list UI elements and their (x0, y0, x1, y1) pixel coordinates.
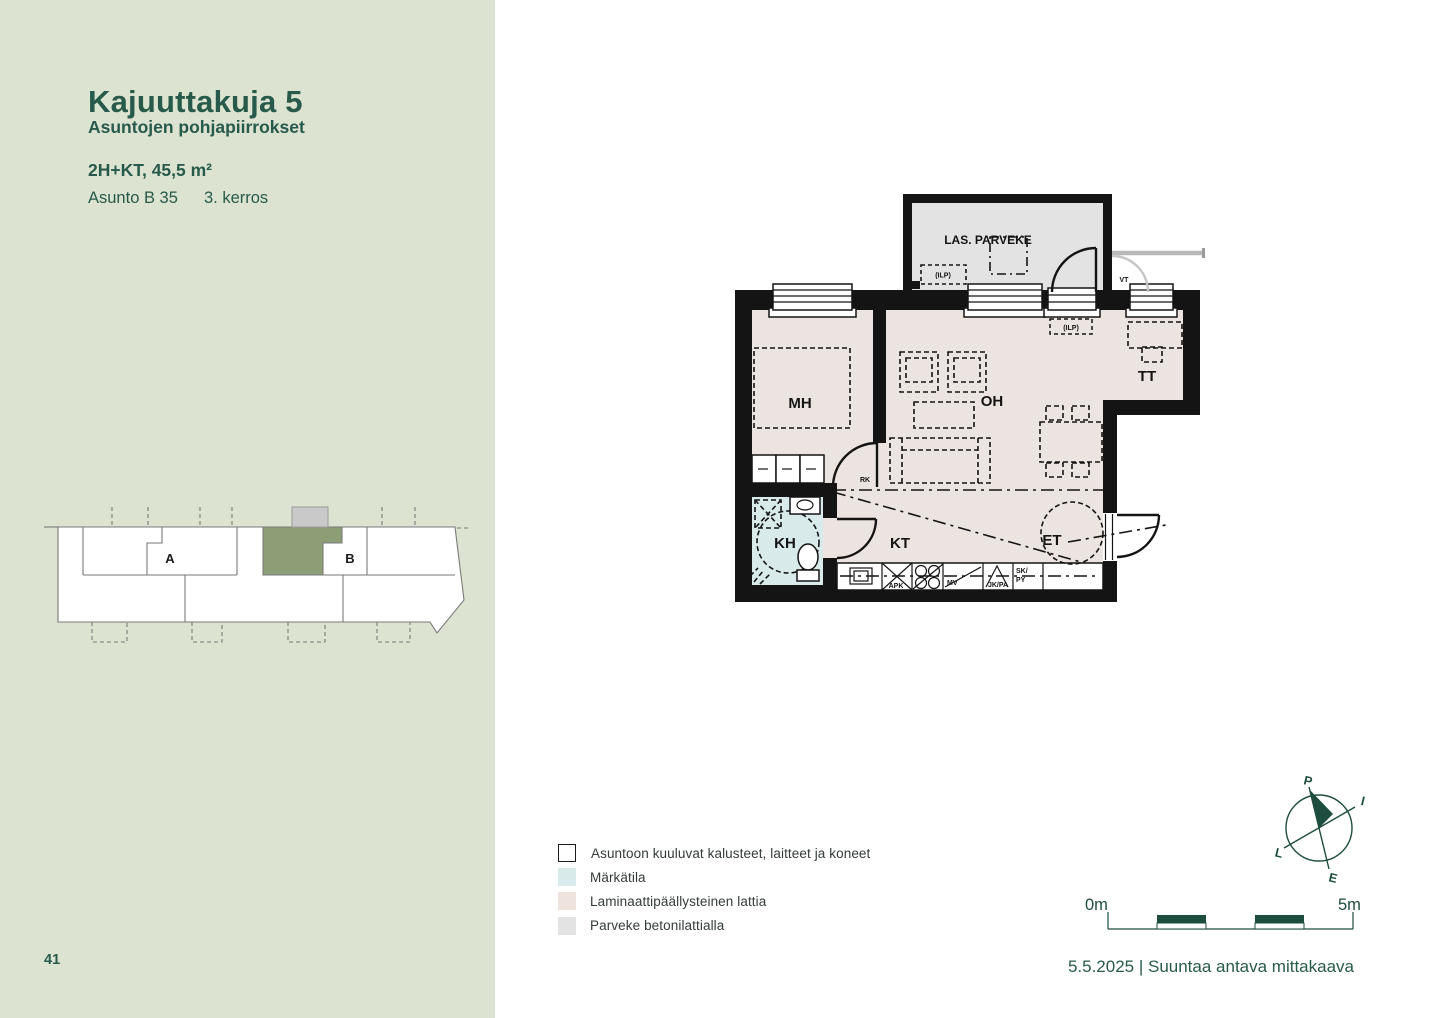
floor-plan: VT (ILP) LAS. PARVEKE (700, 180, 1250, 640)
locator-section-a-label: A (165, 551, 175, 566)
legend-item: Laminaattipäällysteinen lattia (558, 889, 870, 913)
bedroom-window (769, 284, 856, 317)
apartment-floor: 3. kerros (204, 189, 268, 208)
locator-balcony (292, 507, 328, 527)
scale-end-label: 5m (1338, 896, 1361, 914)
bedroom-label: MH (788, 395, 811, 412)
legend-swatch-balcony (558, 917, 576, 935)
page-number: 41 (44, 952, 60, 968)
svg-text:APK: APK (889, 583, 904, 590)
compass-south-label: E (1327, 870, 1338, 886)
locator-section-b-label: B (345, 551, 354, 566)
legend-swatch-laminate (558, 892, 576, 910)
ilp-balcony-label: (ILP) (935, 273, 951, 280)
living-room-label: OH (981, 393, 1004, 410)
entrance-label: ET (1042, 532, 1061, 549)
svg-text:PY: PY (1016, 577, 1026, 584)
wardrobes (752, 455, 824, 483)
bathroom-sink (790, 497, 820, 514)
legend: Asuntoon kuuluvat kalusteet, laitteet ja… (558, 841, 870, 938)
compass-north-label: P (1302, 776, 1313, 789)
apartment-id: Asunto B 35 (88, 189, 178, 207)
balcony-door-opening (1044, 288, 1100, 317)
ilp-living-label: (ILP) (1063, 325, 1079, 332)
apartment-type: 2H+KT, 45,5 m² (88, 160, 212, 181)
footer-date-line: 5.5.2025 | Suuntaa antava mittakaava (1068, 957, 1354, 977)
workspace-window (1126, 284, 1177, 317)
compass-west-label: L (1274, 845, 1285, 861)
living-room-window (964, 284, 1046, 317)
brochure-page: Kajuuttakuja 5 Asuntojen pohjapiirrokset… (0, 0, 1440, 1018)
legend-item: Märkätila (558, 865, 870, 889)
svg-text:SK/: SK/ (1016, 568, 1028, 575)
kitchen-label: KT (890, 535, 910, 552)
scale-bar: 0m 5m (1078, 886, 1378, 941)
sidebar: Kajuuttakuja 5 Asuntojen pohjapiirrokset… (0, 0, 495, 1018)
compass-rose: P I E L (1270, 776, 1375, 886)
page-title: Kajuuttakuja 5 (88, 84, 303, 120)
balcony-label: LAS. PARVEKE (944, 233, 1032, 247)
entrance-door (1103, 514, 1159, 560)
apartment-info-row: Asunto B 35 3. kerros (88, 189, 178, 208)
compass-east-label: I (1360, 794, 1367, 808)
legend-item: Parveke betonilattialla (558, 914, 870, 938)
building-locator-diagram: A B (40, 493, 495, 658)
locator-outline (44, 527, 470, 633)
page-subtitle: Asuntojen pohjapiirrokset (88, 117, 305, 138)
bathroom-label: KH (774, 535, 796, 552)
vt-label: VT (1120, 277, 1130, 284)
legend-item: Asuntoon kuuluvat kalusteet, laitteet ja… (558, 841, 870, 865)
legend-swatch-wetroom (558, 868, 576, 886)
floor-fills (752, 203, 1183, 585)
svg-text:MV: MV (947, 580, 958, 587)
workspace-label: TT (1138, 368, 1156, 385)
legend-swatch-furniture (558, 844, 576, 862)
toilet (797, 544, 819, 581)
rk-label: RK (860, 477, 870, 484)
scale-start-label: 0m (1085, 896, 1108, 914)
svg-text:JK/PA: JK/PA (988, 582, 1008, 589)
